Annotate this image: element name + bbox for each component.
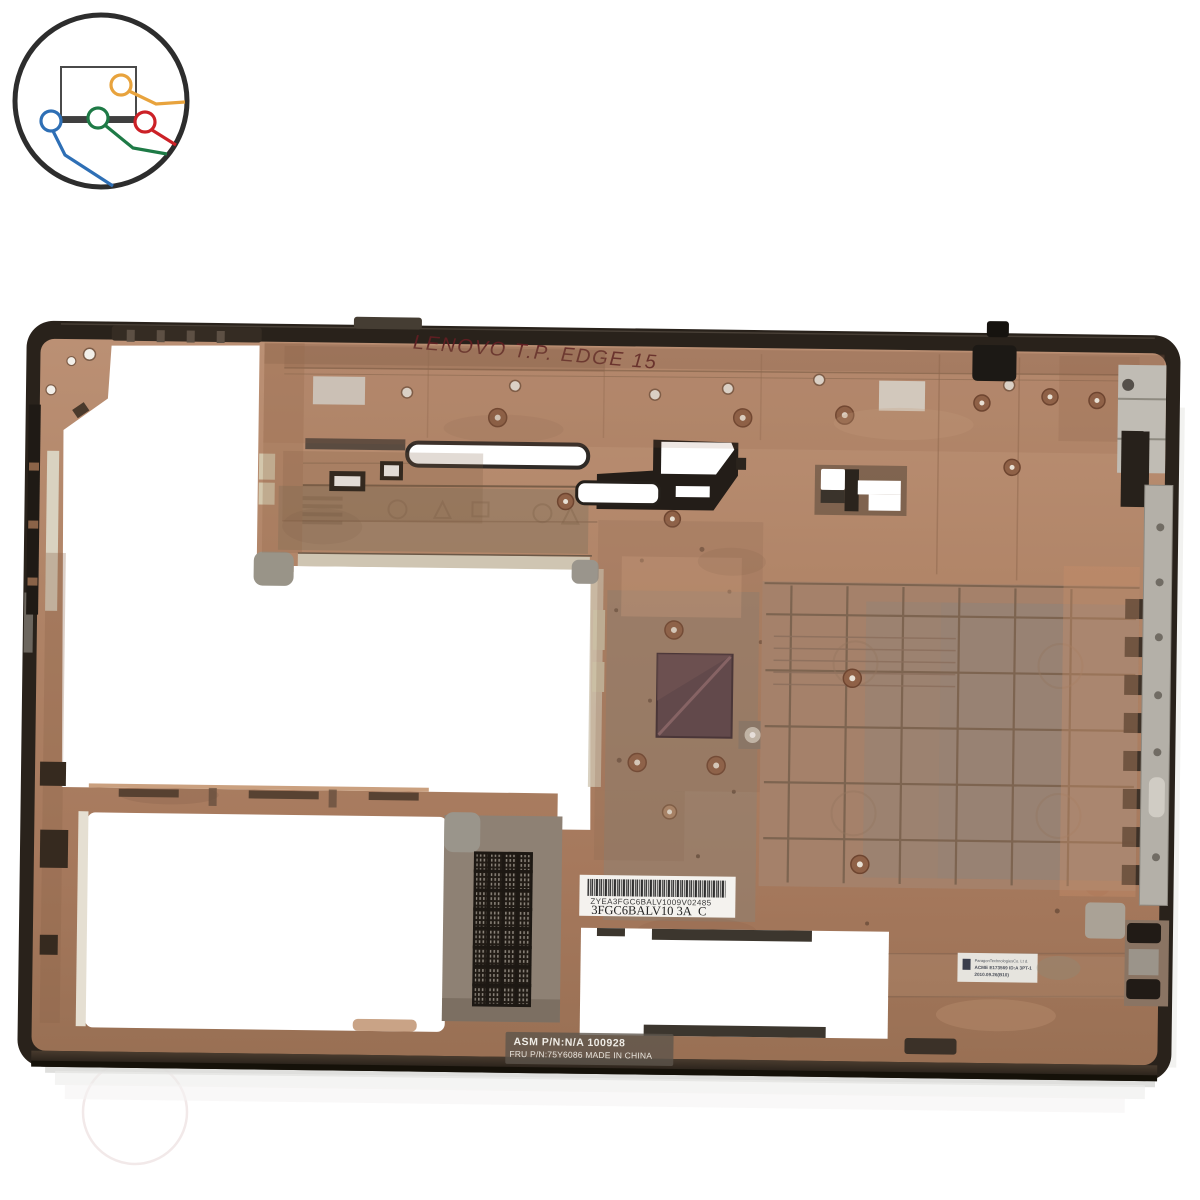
- svg-text:ACME E173569 ID:A 3PT-1: ACME E173569 ID:A 3PT-1: [974, 965, 1032, 971]
- svg-text:2010.09.26(B10): 2010.09.26(B10): [974, 972, 1009, 977]
- svg-text:ParagonTechnologiesCo. Lt d.: ParagonTechnologiesCo. Lt d.: [975, 958, 1029, 964]
- svg-text:ASM P/N:N/A 100928: ASM P/N:N/A 100928: [513, 1036, 625, 1049]
- svg-text:FRU P/N:75Y6086 MADE IN CHINA: FRU P/N:75Y6086 MADE IN CHINA: [509, 1049, 652, 1061]
- svg-text:3FGC6BALV10 3A C: 3FGC6BALV10 3A C: [591, 903, 706, 919]
